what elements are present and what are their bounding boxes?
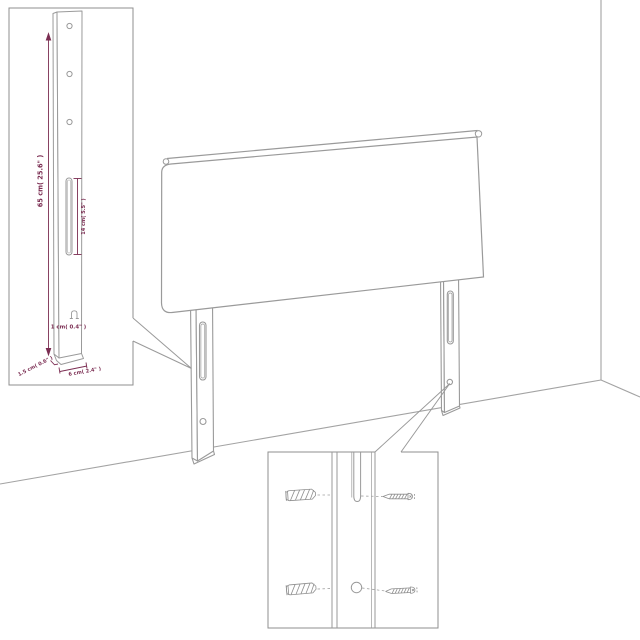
callout-wedge-left: [133, 318, 192, 369]
headboard-front-face: [162, 137, 484, 313]
leg-dimension-inset: 65 cm( 25.6" ) 14 cm( 5.5" ) 1 cm( 0.4" …: [9, 8, 133, 385]
headboard-panel: [162, 131, 484, 313]
mount-hardware-inset: [268, 452, 438, 628]
callout-wedge-right: [375, 384, 450, 453]
hook-label: 1 cm( 0.4" ): [51, 325, 86, 331]
left-leg-bolt-hole: [200, 419, 206, 425]
right-leg-slot: [447, 291, 453, 344]
slot-label: 14 cm( 5.5" ): [81, 198, 87, 234]
product-diagram: 65 cm( 25.6" ) 14 cm( 5.5" ) 1 cm( 0.4" …: [0, 0, 640, 640]
headboard-top-left-curl: [163, 159, 169, 165]
left-leg: [191, 299, 215, 464]
mount-inset-background: [268, 452, 438, 628]
right-leg: [441, 271, 461, 416]
height-label: 65 cm( 25.6" ): [37, 155, 45, 208]
leg-post-drawing: [53, 11, 84, 365]
headboard-top-right-curl: [475, 131, 481, 137]
floor-right-line: [601, 380, 640, 397]
